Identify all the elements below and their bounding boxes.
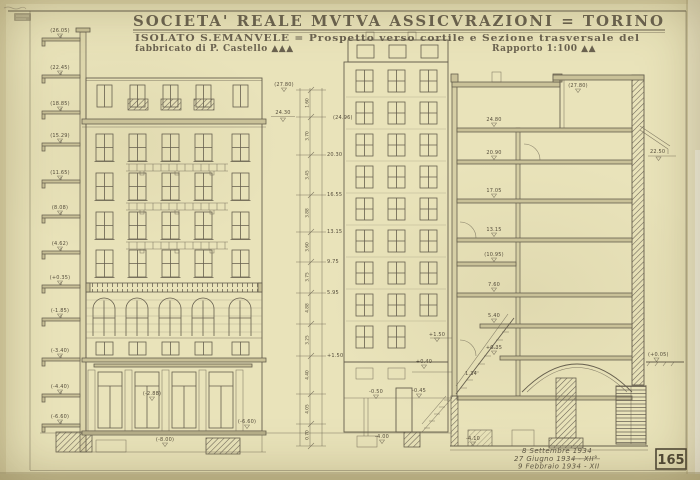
title-block: SOCIETA' REALE MVTVA ASSICVRAZIONI = TOR… [133,12,665,54]
svg-text:1.60: 1.60 [305,98,311,108]
stair-level-label: +0.40 [416,359,432,365]
floor-level-label: 7.60 [488,282,500,288]
basement-level-label: -4.00 [375,434,389,440]
architectural-drawing: SOCIETA' REALE MVTVA ASSICVRAZIONI = TOR… [0,0,700,480]
floor-level-label: 5.40 [488,313,500,319]
level-label: (11.65) [50,170,70,176]
drawing-sheet: SOCIETA' REALE MVTVA ASSICVRAZIONI = TOR… [0,0,700,480]
svg-text:5.95: 5.95 [327,290,339,296]
svg-text:16.55: 16.55 [327,192,342,198]
svg-text:4.05: 4.05 [305,404,311,414]
title-line-3-left: fabbricato di P. Castello ▲▲▲ [135,44,294,54]
svg-text:0.70: 0.70 [305,430,311,440]
basement-level-label: -4.10 [466,436,480,442]
svg-text:3.60: 3.60 [305,242,311,252]
sheet-number: 165 [657,453,684,468]
level-label: (18.85) [50,101,70,107]
level-label: (-6.60) [238,419,256,425]
floor-level-label: 17.05 [486,188,501,194]
svg-text:9.75: 9.75 [327,259,339,265]
level-label: (4.62) [52,241,68,247]
left-section-levels: (26.05) (22.45) (18.85) (15.29) (11.65) … [42,28,92,452]
title-scale-note: Rapporto 1:100 ▲▲ [492,44,596,54]
floor-level-label: 20.90 [486,150,501,156]
corner-stamp [4,7,31,21]
level-label: (-3.40) [51,348,69,354]
level-label: 22.50 [650,149,665,155]
svg-text:3.70: 3.70 [305,131,311,141]
stair-level-label: -0.50 [369,389,383,395]
svg-text:20.30: 20.30 [327,152,342,158]
footer: 8 Settembre 1934 27 Giugno 1934 - XII° 9… [514,447,686,471]
title-line-1: SOCIETA' REALE MVTVA ASSICVRAZIONI = TOR… [133,12,665,30]
svg-text:13.15: 13.15 [327,229,342,235]
stair-level-label: +1.50 [429,332,445,338]
datum-label: (24.96) [333,115,353,121]
floor-level-label: +0.35 [486,345,502,351]
level-label: (27.80) [274,82,294,88]
stair-dim-label: 1.34 [465,371,477,377]
title-line-2: ISOLATO S.EMANVELE = Prospetto verso cor… [135,33,640,44]
floor-level-label: 24.80 [486,117,501,123]
svg-text:3.25: 3.25 [305,335,311,345]
level-label: (27.80) [568,83,588,89]
svg-text:+1.50: +1.50 [327,353,343,359]
svg-text:3.45: 3.45 [305,170,311,180]
cross-section: (27.80) 22.50 (+0.05) 24.80 20.90 17.05 … [369,72,684,450]
svg-text:3.88: 3.88 [305,208,311,218]
level-label: (+0.05) [648,352,669,358]
level-label: (15.29) [50,133,70,139]
date-line-1: 8 Settembre 1934 [522,447,592,455]
courtyard-elevation: (-2.88) (-6.60) (-8.00) [82,78,266,454]
svg-text:4.40: 4.40 [305,370,311,380]
svg-text:3.75: 3.75 [305,272,311,282]
datum-label: 24.30 [275,110,290,116]
svg-text:4.88: 4.88 [305,303,311,313]
date-line-3: 9 Febbraio 1934 - XII [518,463,600,471]
level-label: (8.08) [52,205,68,211]
level-label: (-2.88) [143,391,161,397]
level-label: (-1.85) [51,308,69,314]
level-label: (26.05) [50,28,70,34]
level-label: (-6.60) [51,414,69,420]
level-label: (-8.00) [156,437,174,443]
stair-level-label: -0.45 [412,388,426,394]
level-label: (22.45) [50,65,70,71]
floor-level-label: (10.95) [484,252,504,258]
dimension-chain: (27.80) 24.30 (24.96) 1.60 3.70 3.45 3.8… [271,82,353,449]
floor-level-label: 13.15 [486,227,501,233]
level-label: (+0.35) [50,275,71,281]
level-label: (-4.40) [51,384,69,390]
